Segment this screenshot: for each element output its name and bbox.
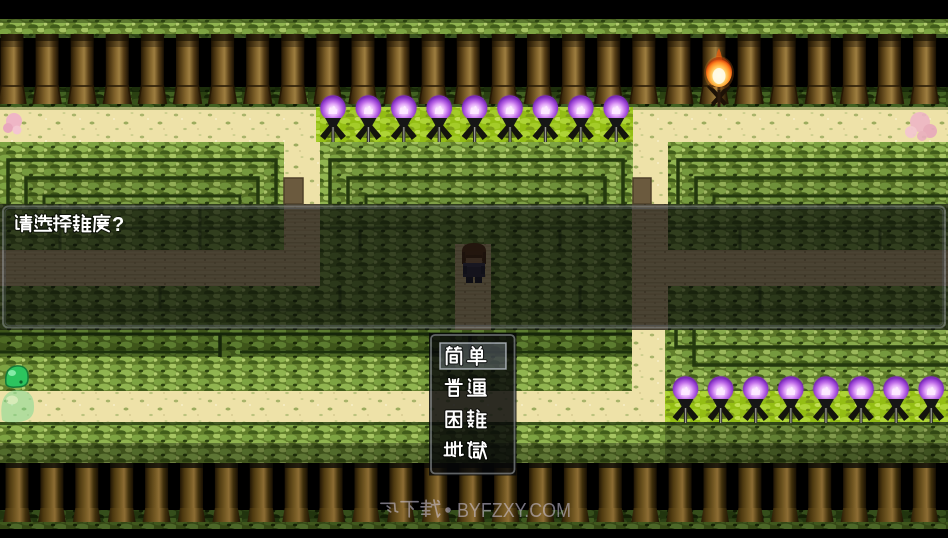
svg-text:?: ?	[112, 214, 124, 236]
svg-text:BYFZXY.COM: BYFZXY.COM	[457, 500, 571, 522]
